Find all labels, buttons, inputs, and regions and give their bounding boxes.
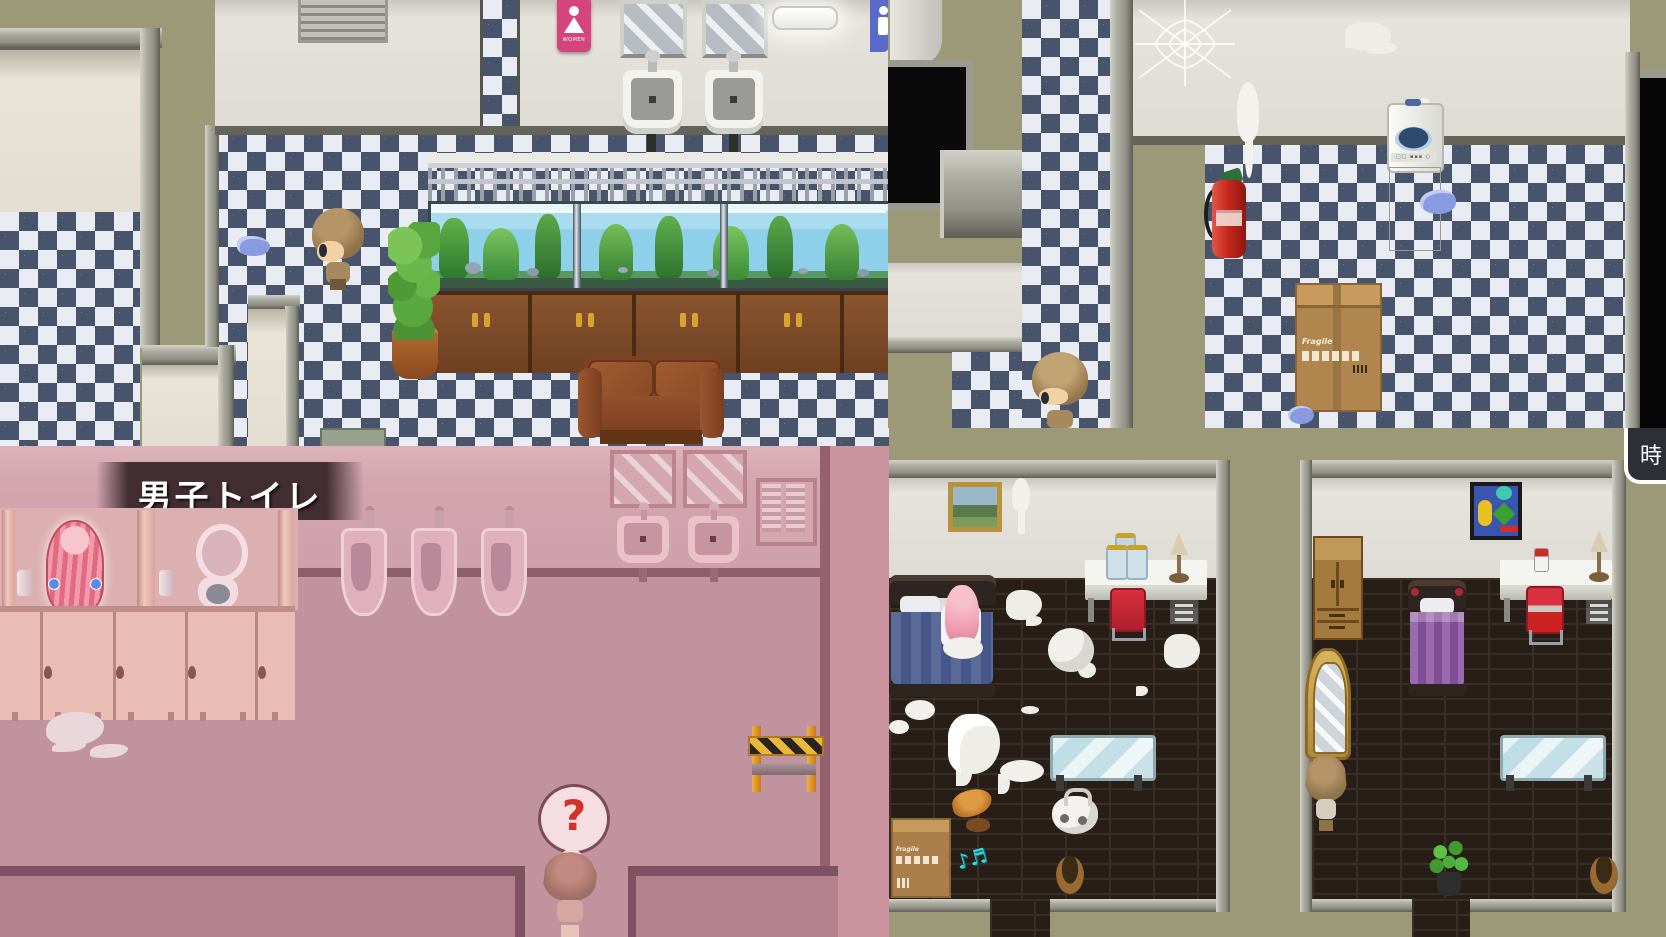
restroom-mirror (683, 450, 747, 508)
men-restroom-sign (870, 0, 889, 52)
pink-haired-girl (945, 585, 979, 643)
wall-stain-drip (1237, 82, 1259, 142)
women-sign-label: WOMEN (557, 37, 591, 43)
question-bubble: ? (538, 784, 610, 854)
time-tab-label: 時 (1640, 438, 1662, 470)
left-room-floor (0, 212, 140, 446)
toilet-paper-roll (17, 570, 34, 596)
cardboard-box-hall: Fragile (1295, 283, 1382, 412)
room1-basket (1056, 856, 1084, 894)
room2-drawers (1586, 600, 1612, 624)
restroom-mirror (610, 450, 676, 508)
tissue-on-floor (1420, 190, 1456, 214)
room1-bed (889, 575, 996, 697)
potted-plant-room2 (1427, 840, 1471, 898)
floor-splatter (46, 712, 104, 746)
room1-door-gap (990, 899, 1050, 937)
wardrobe (1313, 536, 1363, 640)
table-lamp (1583, 530, 1615, 584)
leather-couch (578, 356, 724, 446)
wall-recess (480, 0, 520, 133)
scene-lobby-washroom: WOMEN (0, 0, 889, 446)
aquarium (428, 153, 889, 291)
scene-mens-toilet: 男子トイレ (0, 446, 889, 937)
landscape-picture (948, 482, 1002, 532)
room1-glass-table (1050, 735, 1156, 781)
pink-sink (688, 516, 739, 568)
toilet (194, 522, 242, 610)
room1-drawers (1170, 600, 1198, 624)
urinal (481, 506, 521, 610)
urinal (411, 506, 451, 610)
cooler-basin (1395, 127, 1432, 151)
restroom-character (543, 852, 597, 937)
kettle (1052, 796, 1098, 834)
urinal (341, 506, 381, 610)
player-character (312, 208, 364, 290)
cardboard-box-room: Fragile (891, 818, 951, 898)
left-room-wall-panel (0, 50, 140, 212)
room2-glass-table (1500, 735, 1606, 781)
scene-bedrooms: ♪♬ Fragile (889, 428, 1666, 937)
construction-barrier (748, 726, 820, 792)
room2-basket (1590, 856, 1618, 894)
room2-chair (1526, 586, 1564, 634)
ornate-mirror (1303, 648, 1353, 760)
glass-jars (1106, 533, 1146, 573)
time-tab[interactable]: 時 (1624, 428, 1666, 484)
male-figure-icon (879, 6, 888, 15)
room2-door-gap (1412, 899, 1470, 937)
stall-doors (0, 606, 295, 720)
water-cooler: □□ ▪▪▪ ○ (1385, 103, 1442, 249)
dark-doorway-right (1640, 70, 1666, 428)
game-screenshot-collage: WOMEN (0, 0, 1666, 937)
aquarium-tank (428, 201, 889, 291)
fluorescent-light (772, 6, 838, 30)
window-shutter (756, 478, 817, 546)
toilet-paper-roll (159, 570, 174, 596)
table-lamp (1163, 533, 1195, 585)
question-mark: ? (541, 791, 607, 840)
fire-extinguisher (1204, 168, 1260, 260)
spray-can (1534, 548, 1549, 572)
hallway-character (1032, 352, 1088, 428)
women-restroom-sign: WOMEN (557, 0, 591, 52)
spider-web (1135, 0, 1235, 88)
bedroom-character (1305, 755, 1347, 831)
room2-bed (1408, 580, 1466, 696)
sink (705, 70, 763, 134)
room1-chair (1110, 588, 1146, 632)
tissue-on-floor (237, 236, 270, 256)
pink-sink (617, 516, 669, 568)
fragile-label-room: Fragile (896, 846, 919, 853)
potted-plant (380, 222, 446, 374)
fragile-label: Fragile (1302, 337, 1333, 346)
scene-hallway: □□ ▪▪▪ ○ Fragile (888, 0, 1666, 428)
sink (623, 70, 682, 134)
abstract-art (1470, 482, 1522, 540)
pink-haired-creature (46, 520, 104, 612)
air-vent (298, 0, 388, 43)
female-figure-icon (569, 6, 579, 16)
wall-stain (1012, 478, 1030, 512)
aquarium-railing (428, 163, 889, 201)
hazard-stripe-bar (748, 736, 824, 756)
